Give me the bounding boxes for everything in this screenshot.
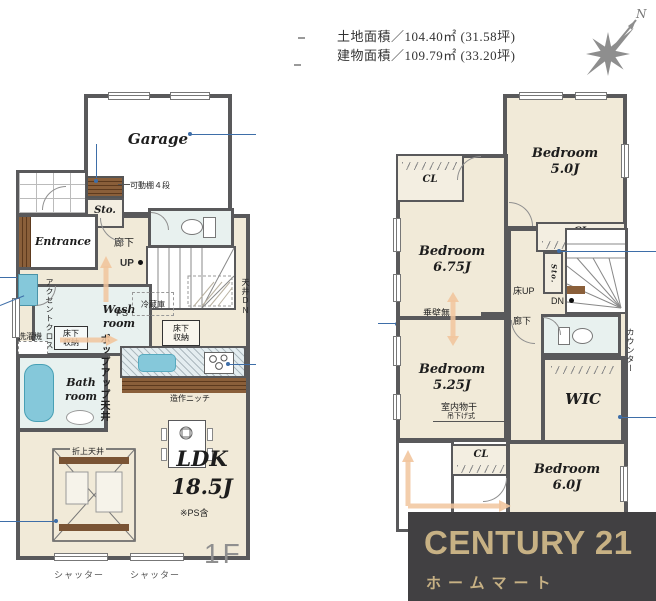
window <box>393 218 401 252</box>
leader-line <box>190 134 256 135</box>
niche-counter <box>122 378 246 393</box>
bedroom675-size: 6.75J <box>400 260 504 276</box>
leader-line <box>118 184 130 185</box>
storage-2f-label: Sto. <box>549 256 558 292</box>
coffered-ceiling-area: 折上天井 <box>52 448 136 542</box>
ldk-note: ※PS含 <box>180 506 209 519</box>
bedroom525-size: 5.25J <box>400 378 504 394</box>
movable-shelf <box>86 176 124 198</box>
closet-top: CL <box>396 154 464 202</box>
window <box>393 274 401 302</box>
bedroom675-name: Bedroom <box>400 244 504 260</box>
window <box>621 144 629 178</box>
room-entrance: Entrance <box>16 214 98 270</box>
window <box>108 92 150 100</box>
down-dot <box>569 298 574 303</box>
bedroom5-name: Bedroom <box>507 146 623 162</box>
land-area-text: 土地面積／104.40㎡ (31.58坪) <box>337 26 515 45</box>
floor-plan-1f: Garage Sto. 可動棚４段 Entrance 廊下 UP <box>12 88 256 588</box>
leader-line <box>228 364 256 365</box>
window <box>620 466 628 502</box>
leader-line <box>560 251 656 252</box>
entrance-step <box>19 217 31 267</box>
dash-mark <box>294 64 301 66</box>
ldk-name: LDK <box>162 446 242 472</box>
bathtub <box>24 364 54 422</box>
toilet-tank <box>203 217 216 238</box>
leader-dot <box>94 179 98 183</box>
underfloor-storage-wash: 床下収納 <box>54 326 88 350</box>
bedroom6-name: Bedroom <box>510 462 624 478</box>
window-shutter-left <box>54 553 108 561</box>
kitchen-sink <box>138 354 176 372</box>
garage-label: Garage <box>88 130 228 149</box>
leader-line <box>0 521 56 522</box>
chair <box>161 428 167 441</box>
storage-2f: Sto. <box>543 252 563 294</box>
underfloor-storage-kitchen: 床下収納 <box>162 320 200 346</box>
bath-stool <box>66 410 94 425</box>
coffered-label: 折上天井 <box>70 446 106 457</box>
leader-line <box>378 323 396 324</box>
shutter-label-left: シャッター <box>54 568 104 581</box>
niche-label: 造作ニッチ <box>170 393 210 404</box>
room-wic: WIC <box>541 356 625 446</box>
up-label: UP <box>120 258 134 269</box>
bedroom525-name: Bedroom <box>400 362 504 378</box>
bedroom6-size: 6.0J <box>510 478 624 494</box>
ps-label: PS <box>116 308 128 318</box>
window <box>170 92 210 100</box>
closet-bottom: CL <box>451 444 511 476</box>
window <box>575 92 607 100</box>
floor-label-1f: 1F <box>204 538 243 570</box>
dash-mark <box>298 37 305 39</box>
window <box>393 394 401 420</box>
window <box>12 298 20 338</box>
compass-rose-icon: N <box>572 6 652 94</box>
brand-name: CENTURY 21 <box>424 524 633 562</box>
century21-logo: CENTURY 21 ホームマート <box>408 512 656 601</box>
leader-line <box>622 417 656 418</box>
fridge-box: 冷蔵庫 <box>132 292 174 316</box>
toilet-bowl <box>181 219 203 235</box>
up-dot <box>138 260 143 265</box>
shelf-note-label: 可動棚４段 <box>130 180 170 191</box>
bedroom5-size: 5.0J <box>507 162 623 178</box>
entrance-label: Entrance <box>31 235 95 249</box>
room-bathroom: Bath room <box>16 354 108 432</box>
shutter-label-right: シャッター <box>130 568 180 581</box>
door-arc <box>483 478 507 502</box>
stairs-2f <box>565 228 627 314</box>
vanity-sink <box>18 274 38 306</box>
company-name: ホームマート <box>426 572 558 593</box>
hanging-type-label: 吊下げ式 <box>447 411 475 421</box>
floor-plan-2f: Bedroom 5.0J Bedroom 6.75J CL CL Sto. <box>393 88 656 558</box>
floor-up-label: 床UP <box>513 284 535 297</box>
popup-ceiling-label: ポップアップ天井 <box>96 334 111 450</box>
leader-line <box>0 277 17 278</box>
drying-pole <box>433 421 505 422</box>
down-label: DN <box>551 296 564 306</box>
window <box>393 336 401 366</box>
hanger-ticks <box>402 162 458 170</box>
window <box>519 92 563 100</box>
counter-label: カウンター <box>625 328 636 373</box>
floorplan-page: 土地面積／104.40㎡ (31.58坪) 建物面積／109.79㎡ (33.2… <box>0 0 656 601</box>
cl-bottom-label: CL <box>453 449 509 462</box>
hanger-ticks <box>551 366 617 374</box>
cl-top-label: CL <box>398 174 462 187</box>
wic-label: WIC <box>545 390 621 409</box>
hanger-ticks <box>457 465 505 473</box>
building-area-text: 建物面積／109.79㎡ (33.20坪) <box>337 45 515 64</box>
ldk-size: 18.5J <box>162 474 242 500</box>
room-bedroom-525: Bedroom 5.25J <box>396 316 508 442</box>
leader-line <box>96 144 97 178</box>
ceiling-down-label: 天井DN <box>240 278 251 316</box>
compass-north-label: N <box>635 7 647 21</box>
toilet-bowl <box>572 328 593 344</box>
window-shutter-right <box>130 553 184 561</box>
chair <box>207 428 213 441</box>
